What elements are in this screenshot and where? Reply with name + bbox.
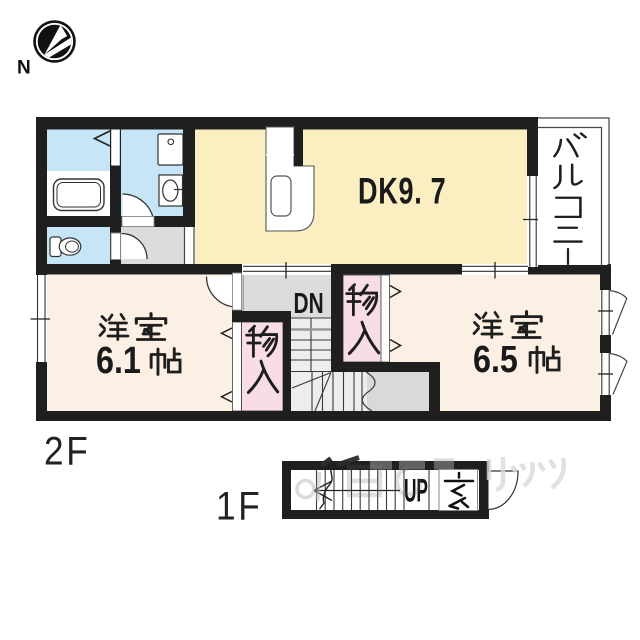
svg-text:N: N [17, 58, 31, 79]
svg-text:DN: DN [294, 288, 324, 320]
svg-text:2F: 2F [44, 428, 90, 473]
svg-text:DK9. 7: DK9. 7 [358, 170, 446, 211]
svg-text:1F: 1F [216, 483, 262, 528]
svg-text:6.5: 6.5 [473, 339, 518, 381]
svg-text:6.1: 6.1 [96, 340, 141, 382]
